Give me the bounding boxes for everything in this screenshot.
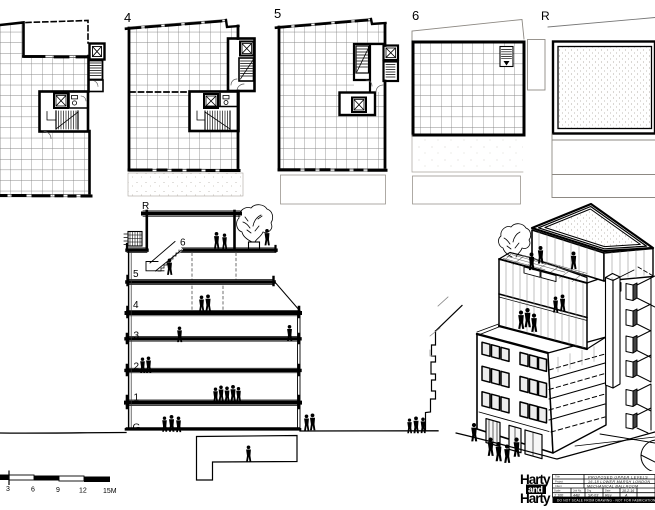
svg-text:SK-03: SK-03 — [588, 493, 599, 497]
svg-text:4: 4 — [133, 300, 139, 311]
svg-text:DO NOT SCALE FROM DRAWING - NO: DO NOT SCALE FROM DRAWING - NOT FOR FABR… — [557, 499, 655, 503]
svg-text:Drg: Drg — [587, 489, 592, 493]
svg-text:16-18 LOWER MARSH LONDON: 16-18 LOWER MARSH LONDON — [588, 480, 650, 484]
svg-text:12: 12 — [79, 488, 87, 495]
svg-text:Harty: Harty — [520, 491, 551, 506]
svg-text:6: 6 — [412, 8, 419, 23]
svg-text:PROPOSED UPPER LEVELS: PROPOSED UPPER LEVELS — [588, 475, 648, 479]
svg-text:4: 4 — [124, 10, 131, 25]
svg-text:Date: Date — [605, 489, 611, 493]
svg-text:Job No.: Job No. — [573, 489, 582, 493]
svg-text:3: 3 — [6, 486, 10, 493]
svg-text:44B: 44B — [573, 493, 580, 497]
svg-text:5: 5 — [274, 6, 281, 21]
svg-text:Client: Client — [555, 484, 562, 488]
svg-text:5: 5 — [133, 269, 139, 280]
svg-text:10.2.16: 10.2.16 — [622, 489, 635, 493]
svg-text:6: 6 — [180, 238, 186, 249]
svg-text:Scale: Scale — [554, 489, 561, 493]
svg-text:Title: Title — [555, 475, 560, 479]
svg-text:Rev: Rev — [605, 493, 613, 497]
svg-text:6: 6 — [31, 487, 35, 494]
svg-text:A: A — [624, 493, 628, 497]
svg-text:Project: Project — [555, 479, 563, 483]
svg-text:15M: 15M — [103, 488, 117, 495]
svg-text:R: R — [541, 9, 550, 23]
svg-text:1:100: 1:100 — [554, 493, 564, 497]
svg-text:9: 9 — [56, 487, 60, 494]
